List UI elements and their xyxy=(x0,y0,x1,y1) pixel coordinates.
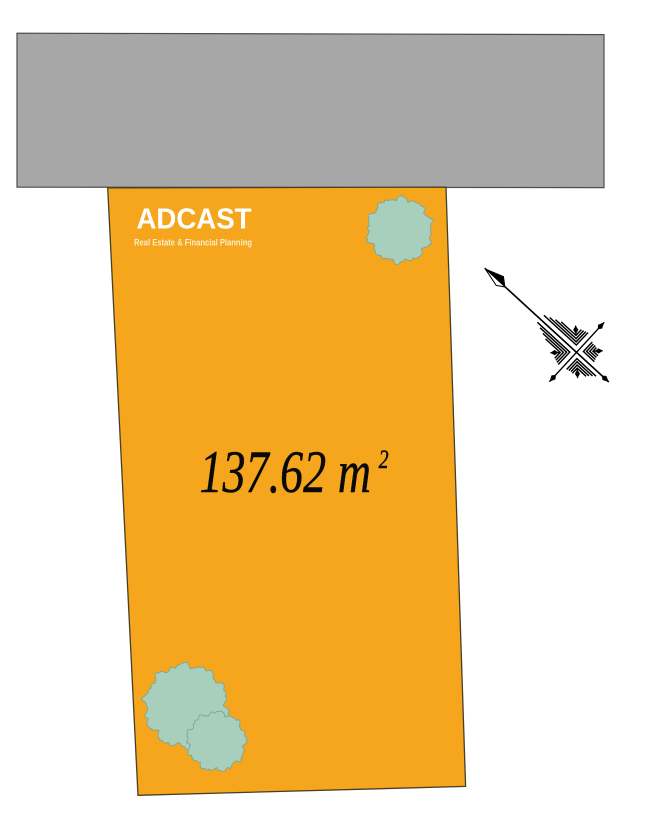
svg-text:Real Estate & Financial Planni: Real Estate & Financial Planning xyxy=(134,238,252,248)
svg-text:ADCAST: ADCAST xyxy=(137,203,253,235)
svg-text:137.62 m2: 137.62 m2 xyxy=(200,438,390,505)
